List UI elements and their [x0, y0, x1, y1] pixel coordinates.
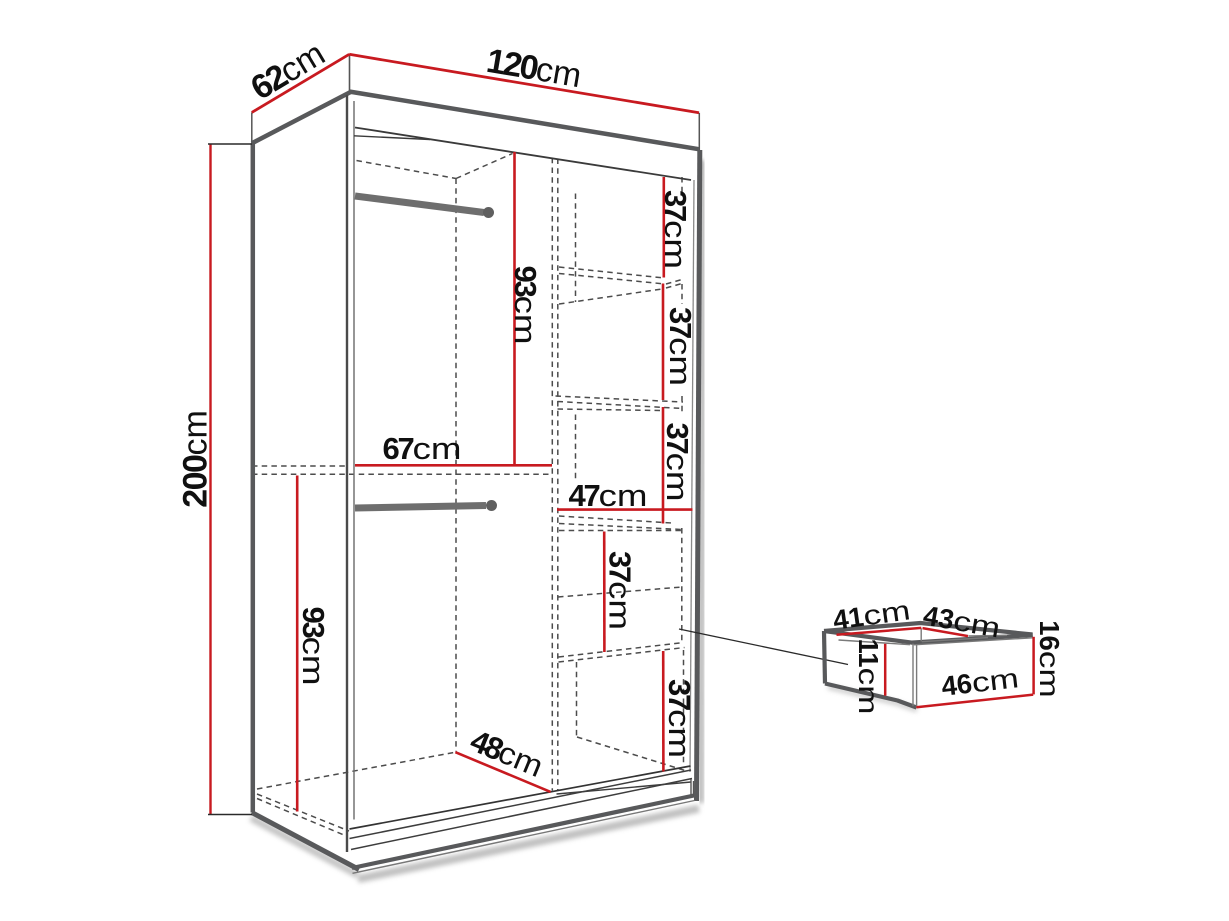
- svg-text:37cm: 37cm: [664, 307, 699, 386]
- svg-text:37cm: 37cm: [603, 551, 638, 630]
- svg-text:16cm: 16cm: [1034, 620, 1065, 698]
- svg-text:37cm: 37cm: [661, 422, 696, 501]
- svg-text:47cm: 47cm: [568, 478, 647, 513]
- svg-text:200cm: 200cm: [177, 410, 215, 508]
- svg-text:93cm: 93cm: [297, 606, 332, 685]
- svg-text:93cm: 93cm: [509, 265, 544, 344]
- svg-text:37cm: 37cm: [659, 190, 694, 269]
- svg-text:11cm: 11cm: [854, 638, 885, 714]
- svg-text:37cm: 37cm: [663, 679, 698, 758]
- svg-text:67cm: 67cm: [382, 431, 461, 466]
